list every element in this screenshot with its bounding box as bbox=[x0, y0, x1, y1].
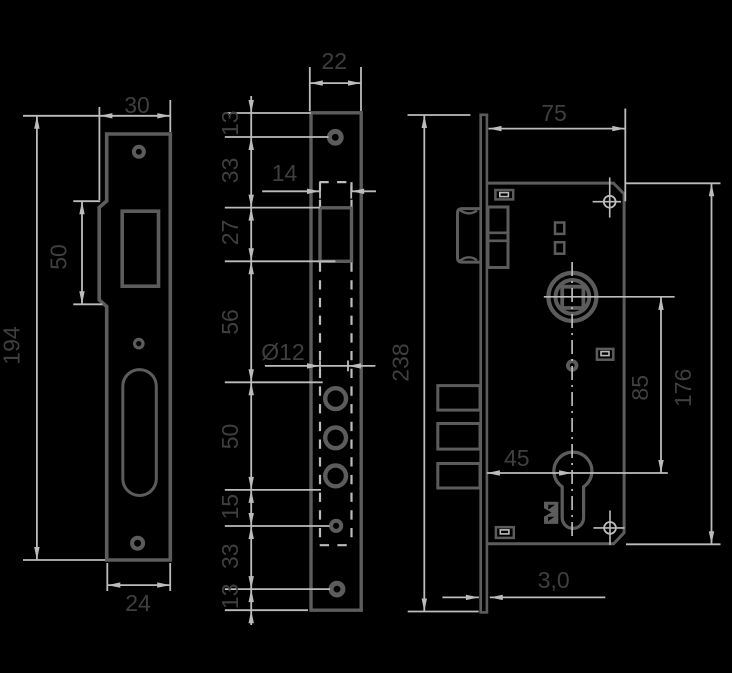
svg-text:33: 33 bbox=[217, 543, 243, 569]
svg-text:45: 45 bbox=[504, 445, 530, 471]
svg-text:24: 24 bbox=[125, 590, 151, 616]
svg-text:13: 13 bbox=[217, 584, 243, 610]
svg-text:56: 56 bbox=[217, 309, 243, 335]
svg-text:30: 30 bbox=[124, 92, 150, 118]
svg-text:50: 50 bbox=[46, 244, 72, 270]
svg-text:14: 14 bbox=[272, 160, 298, 186]
svg-text:Ø12: Ø12 bbox=[261, 339, 304, 365]
svg-text:33: 33 bbox=[217, 158, 243, 184]
svg-text:13: 13 bbox=[217, 110, 243, 136]
svg-text:238: 238 bbox=[387, 343, 413, 381]
svg-text:194: 194 bbox=[0, 326, 25, 365]
svg-text:85: 85 bbox=[627, 375, 653, 401]
svg-text:15: 15 bbox=[217, 494, 243, 520]
svg-text:22: 22 bbox=[322, 48, 348, 74]
svg-text:27: 27 bbox=[217, 220, 243, 246]
svg-text:50: 50 bbox=[217, 424, 243, 450]
svg-text:176: 176 bbox=[670, 369, 696, 407]
svg-text:3,0: 3,0 bbox=[538, 567, 570, 593]
svg-text:75: 75 bbox=[541, 100, 567, 126]
